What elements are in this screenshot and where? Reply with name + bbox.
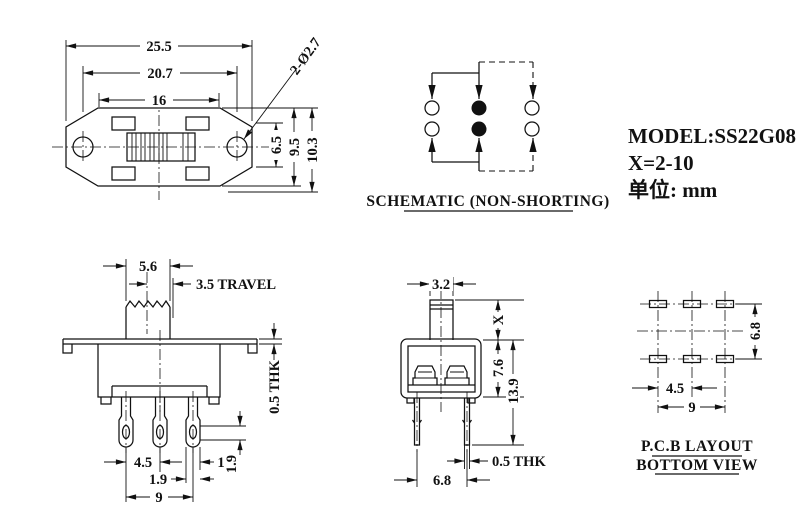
knob-break-zigzag bbox=[126, 301, 170, 307]
svg-text:0.5 THK: 0.5 THK bbox=[267, 359, 283, 413]
dim-inner-width: 16 bbox=[145, 93, 173, 109]
schematic-view: SCHEMATIC (NON-SHORTING) bbox=[366, 62, 609, 211]
drawing-sheet: 25.5 20.7 16 6.5 9.5 10.3 2-Ø2.7 bbox=[0, 0, 800, 520]
dim-knob-width: 5.6 bbox=[139, 259, 157, 275]
info-block: MODEL:SS22G08 X=2-10 单位: mm bbox=[628, 124, 796, 202]
dim-pcb-col-pitch: 4.5 bbox=[666, 381, 684, 397]
svg-text:1.9: 1.9 bbox=[149, 472, 167, 488]
contact-open bbox=[525, 101, 539, 115]
contact-open bbox=[425, 101, 439, 115]
dim-pin-hole-height: 1.9 bbox=[224, 455, 240, 473]
svg-text:6.8: 6.8 bbox=[433, 473, 451, 489]
side-knob bbox=[430, 300, 453, 340]
dim-hole-span: 20.7 bbox=[140, 66, 180, 82]
terminal-window bbox=[186, 117, 209, 130]
svg-text:1.9: 1.9 bbox=[224, 455, 240, 473]
dim-pin-width: 1.9 bbox=[149, 472, 167, 488]
svg-text:10.3: 10.3 bbox=[305, 137, 321, 162]
terminal-window bbox=[186, 167, 209, 180]
svg-text:4.5: 4.5 bbox=[666, 381, 684, 397]
dim-total-height: 10.3 bbox=[305, 131, 321, 169]
pcb-caption-line1: P.C.B LAYOUT bbox=[641, 438, 753, 455]
svg-text:25.5: 25.5 bbox=[146, 39, 171, 55]
top-view: 25.5 20.7 16 6.5 9.5 10.3 2-Ø2.7 bbox=[52, 35, 324, 200]
dim-hole-callout: 2-Ø2.7 bbox=[287, 35, 324, 78]
dim-body-height: 9.5 bbox=[287, 132, 303, 162]
side-view: 3.2 X 7.6 13.9 0.5 THK 6.8 bbox=[394, 277, 546, 489]
contact-common bbox=[472, 101, 487, 116]
x-range: X=2-10 bbox=[628, 151, 694, 175]
terminal-window bbox=[112, 167, 135, 180]
dim-side-pin-thickness: 0.5 THK bbox=[492, 454, 546, 470]
svg-text:6.8: 6.8 bbox=[748, 322, 764, 340]
svg-text:2-Ø2.7: 2-Ø2.7 bbox=[287, 35, 324, 78]
svg-text:20.7: 20.7 bbox=[147, 66, 172, 82]
svg-text:5.6: 5.6 bbox=[139, 259, 157, 275]
dim-side-pin-pitch: 6.8 bbox=[433, 473, 451, 489]
contact-common bbox=[472, 122, 487, 137]
dim-pcb-row-pitch: 6.8 bbox=[748, 317, 764, 345]
dim-travel: 3.5 TRAVEL bbox=[196, 277, 276, 293]
model-number: MODEL:SS22G08 bbox=[628, 124, 796, 148]
svg-text:9: 9 bbox=[688, 400, 695, 416]
dim-slot-height: 6.5 bbox=[269, 130, 285, 160]
dim-pin-pitch: 4.5 bbox=[134, 455, 152, 471]
pcb-view: 6.8 4.5 9 P.C.B LAYOUT BOTTOM VIEW bbox=[632, 291, 764, 474]
schematic-caption: SCHEMATIC (NON-SHORTING) bbox=[366, 193, 609, 210]
contact-open bbox=[525, 122, 539, 136]
dim-pcb-span: 9 bbox=[684, 400, 700, 416]
svg-text:4.5: 4.5 bbox=[134, 455, 152, 471]
knob-knurl-lines bbox=[132, 133, 188, 161]
technical-drawing: 25.5 20.7 16 6.5 9.5 10.3 2-Ø2.7 bbox=[0, 0, 800, 520]
dim-side-knob-width: 3.2 bbox=[429, 277, 453, 293]
terminal-window bbox=[112, 117, 135, 130]
dim-flange-thickness: 0.5 THK bbox=[267, 359, 283, 413]
front-view: 5.6 3.5 TRAVEL 0.5 THK 4.5 1 1.9 1.9 9 bbox=[63, 259, 283, 506]
svg-text:3.2: 3.2 bbox=[432, 277, 450, 293]
unit-note: 单位: mm bbox=[628, 178, 718, 202]
svg-text:9: 9 bbox=[155, 490, 162, 506]
svg-text:SCHEMATIC (NON-SHORTING): SCHEMATIC (NON-SHORTING) bbox=[366, 193, 609, 210]
svg-text:16: 16 bbox=[152, 93, 167, 109]
dim-knob-height-x: X bbox=[491, 312, 507, 328]
dim-overall-width: 25.5 bbox=[140, 39, 178, 55]
svg-text:13.9: 13.9 bbox=[506, 378, 522, 403]
terminal-right bbox=[445, 366, 469, 385]
dim-side-total-height: 13.9 bbox=[506, 374, 522, 408]
svg-text:P.C.B LAYOUT: P.C.B LAYOUT bbox=[641, 438, 753, 455]
dim-side-body-height: 7.6 bbox=[491, 354, 507, 382]
terminal-left bbox=[413, 366, 437, 385]
svg-text:6.5: 6.5 bbox=[269, 136, 285, 154]
svg-text:X: X bbox=[491, 314, 507, 325]
pcb-caption-line2: BOTTOM VIEW bbox=[636, 457, 758, 474]
svg-text:BOTTOM VIEW: BOTTOM VIEW bbox=[636, 457, 758, 474]
svg-text:9.5: 9.5 bbox=[287, 138, 303, 156]
contact-open bbox=[425, 122, 439, 136]
svg-text:7.6: 7.6 bbox=[491, 359, 507, 377]
dim-pin-span: 9 bbox=[150, 490, 168, 506]
front-body-outline bbox=[98, 344, 220, 397]
